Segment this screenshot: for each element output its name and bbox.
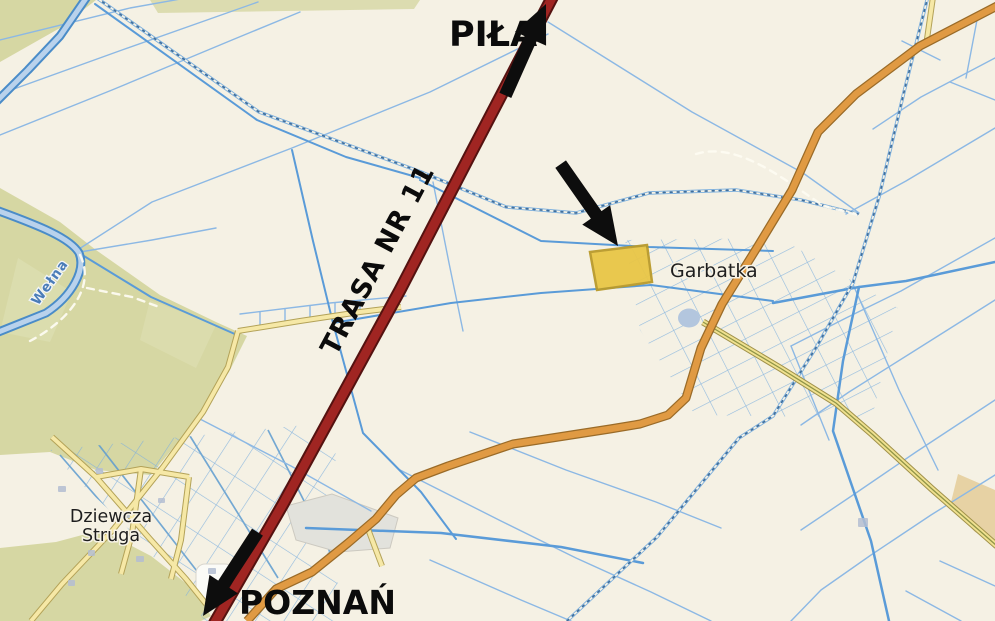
label-dziewcza-line2: Struga [82,526,140,546]
arrow-parcel-pointer-icon [547,154,632,255]
highlighted-parcel[interactable] [590,245,652,290]
pond [678,309,700,328]
label-dziewcza-line1: Dziewcza [70,507,152,527]
map-canvas[interactable]: Garbatka Dziewcza Struga Wełna PIŁA POZN… [0,0,995,621]
label-poznan: POZNAŃ [239,582,396,621]
label-garbatka: Garbatka [670,260,758,282]
